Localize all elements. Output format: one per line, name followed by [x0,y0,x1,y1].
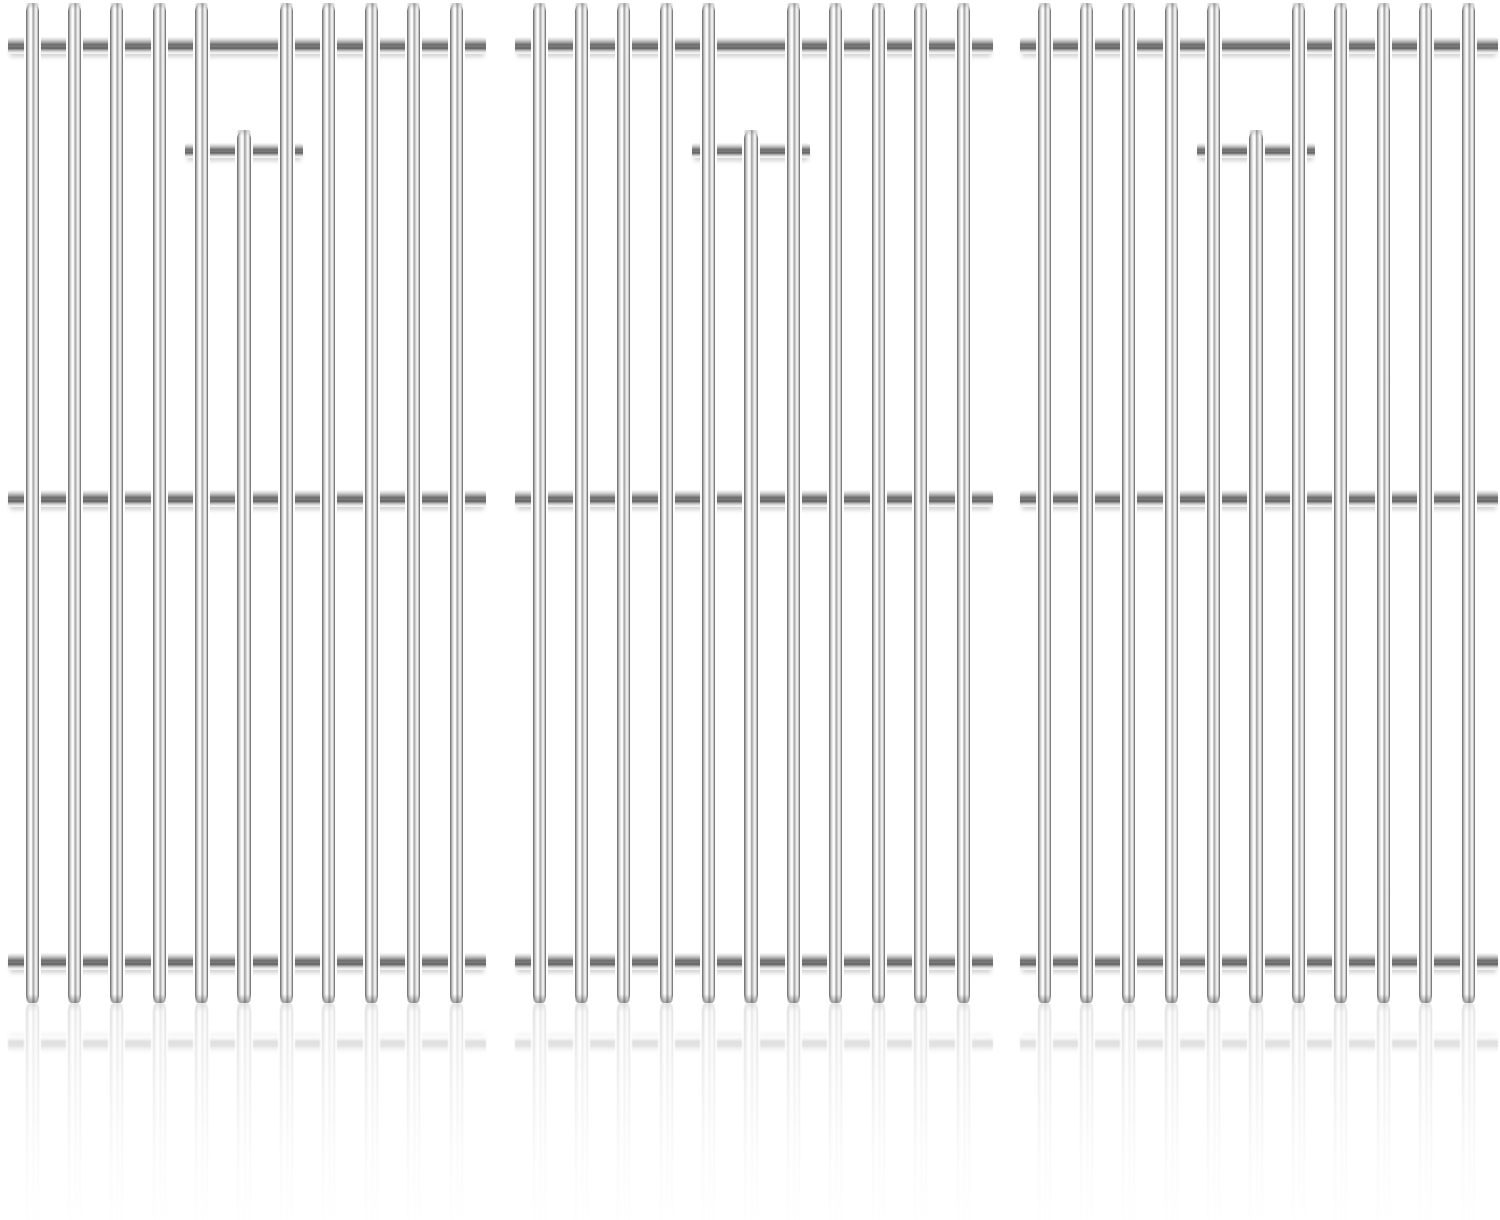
short-rod [1249,130,1263,1003]
grate-rod [829,3,842,1003]
floor-reflection [0,1003,1500,1220]
grill-grate-3 [1020,0,1498,1003]
grate-rod [1292,3,1305,1003]
grate-rod [26,3,39,1003]
grate-rod [1377,3,1390,1003]
grate-rod [195,3,208,1003]
grate-rod [68,3,81,1003]
grate-rod [1334,3,1347,1003]
grate-rod [787,3,800,1003]
grate-rod [872,3,885,1003]
grate-rod [1165,3,1178,1003]
grate-rod [407,3,420,1003]
grate-rod [1207,3,1220,1003]
grate-rod [533,3,546,1003]
grate-rod [322,3,335,1003]
reflection-fade-overlay [0,1003,1500,1220]
grate-rod [1080,3,1093,1003]
grates-group [0,0,1500,1003]
grate-rod [280,3,293,1003]
grate-rod [617,3,630,1003]
grate-rod [1122,3,1135,1003]
grate-rod [957,3,970,1003]
short-rod [237,130,251,1003]
grate-rod [914,3,927,1003]
short-rod [744,130,758,1003]
grate-rod [365,3,378,1003]
grill-grate-1 [8,0,486,1003]
grill-grate-2 [515,0,993,1003]
grate-rod [1419,3,1432,1003]
grate-rod [153,3,166,1003]
grate-rod [450,3,463,1003]
grate-rod [1038,3,1051,1003]
grate-rod [110,3,123,1003]
product-photo-canvas [0,0,1500,1220]
grate-rod [660,3,673,1003]
grate-rod [575,3,588,1003]
grate-rod [1462,3,1475,1003]
grate-rod [702,3,715,1003]
